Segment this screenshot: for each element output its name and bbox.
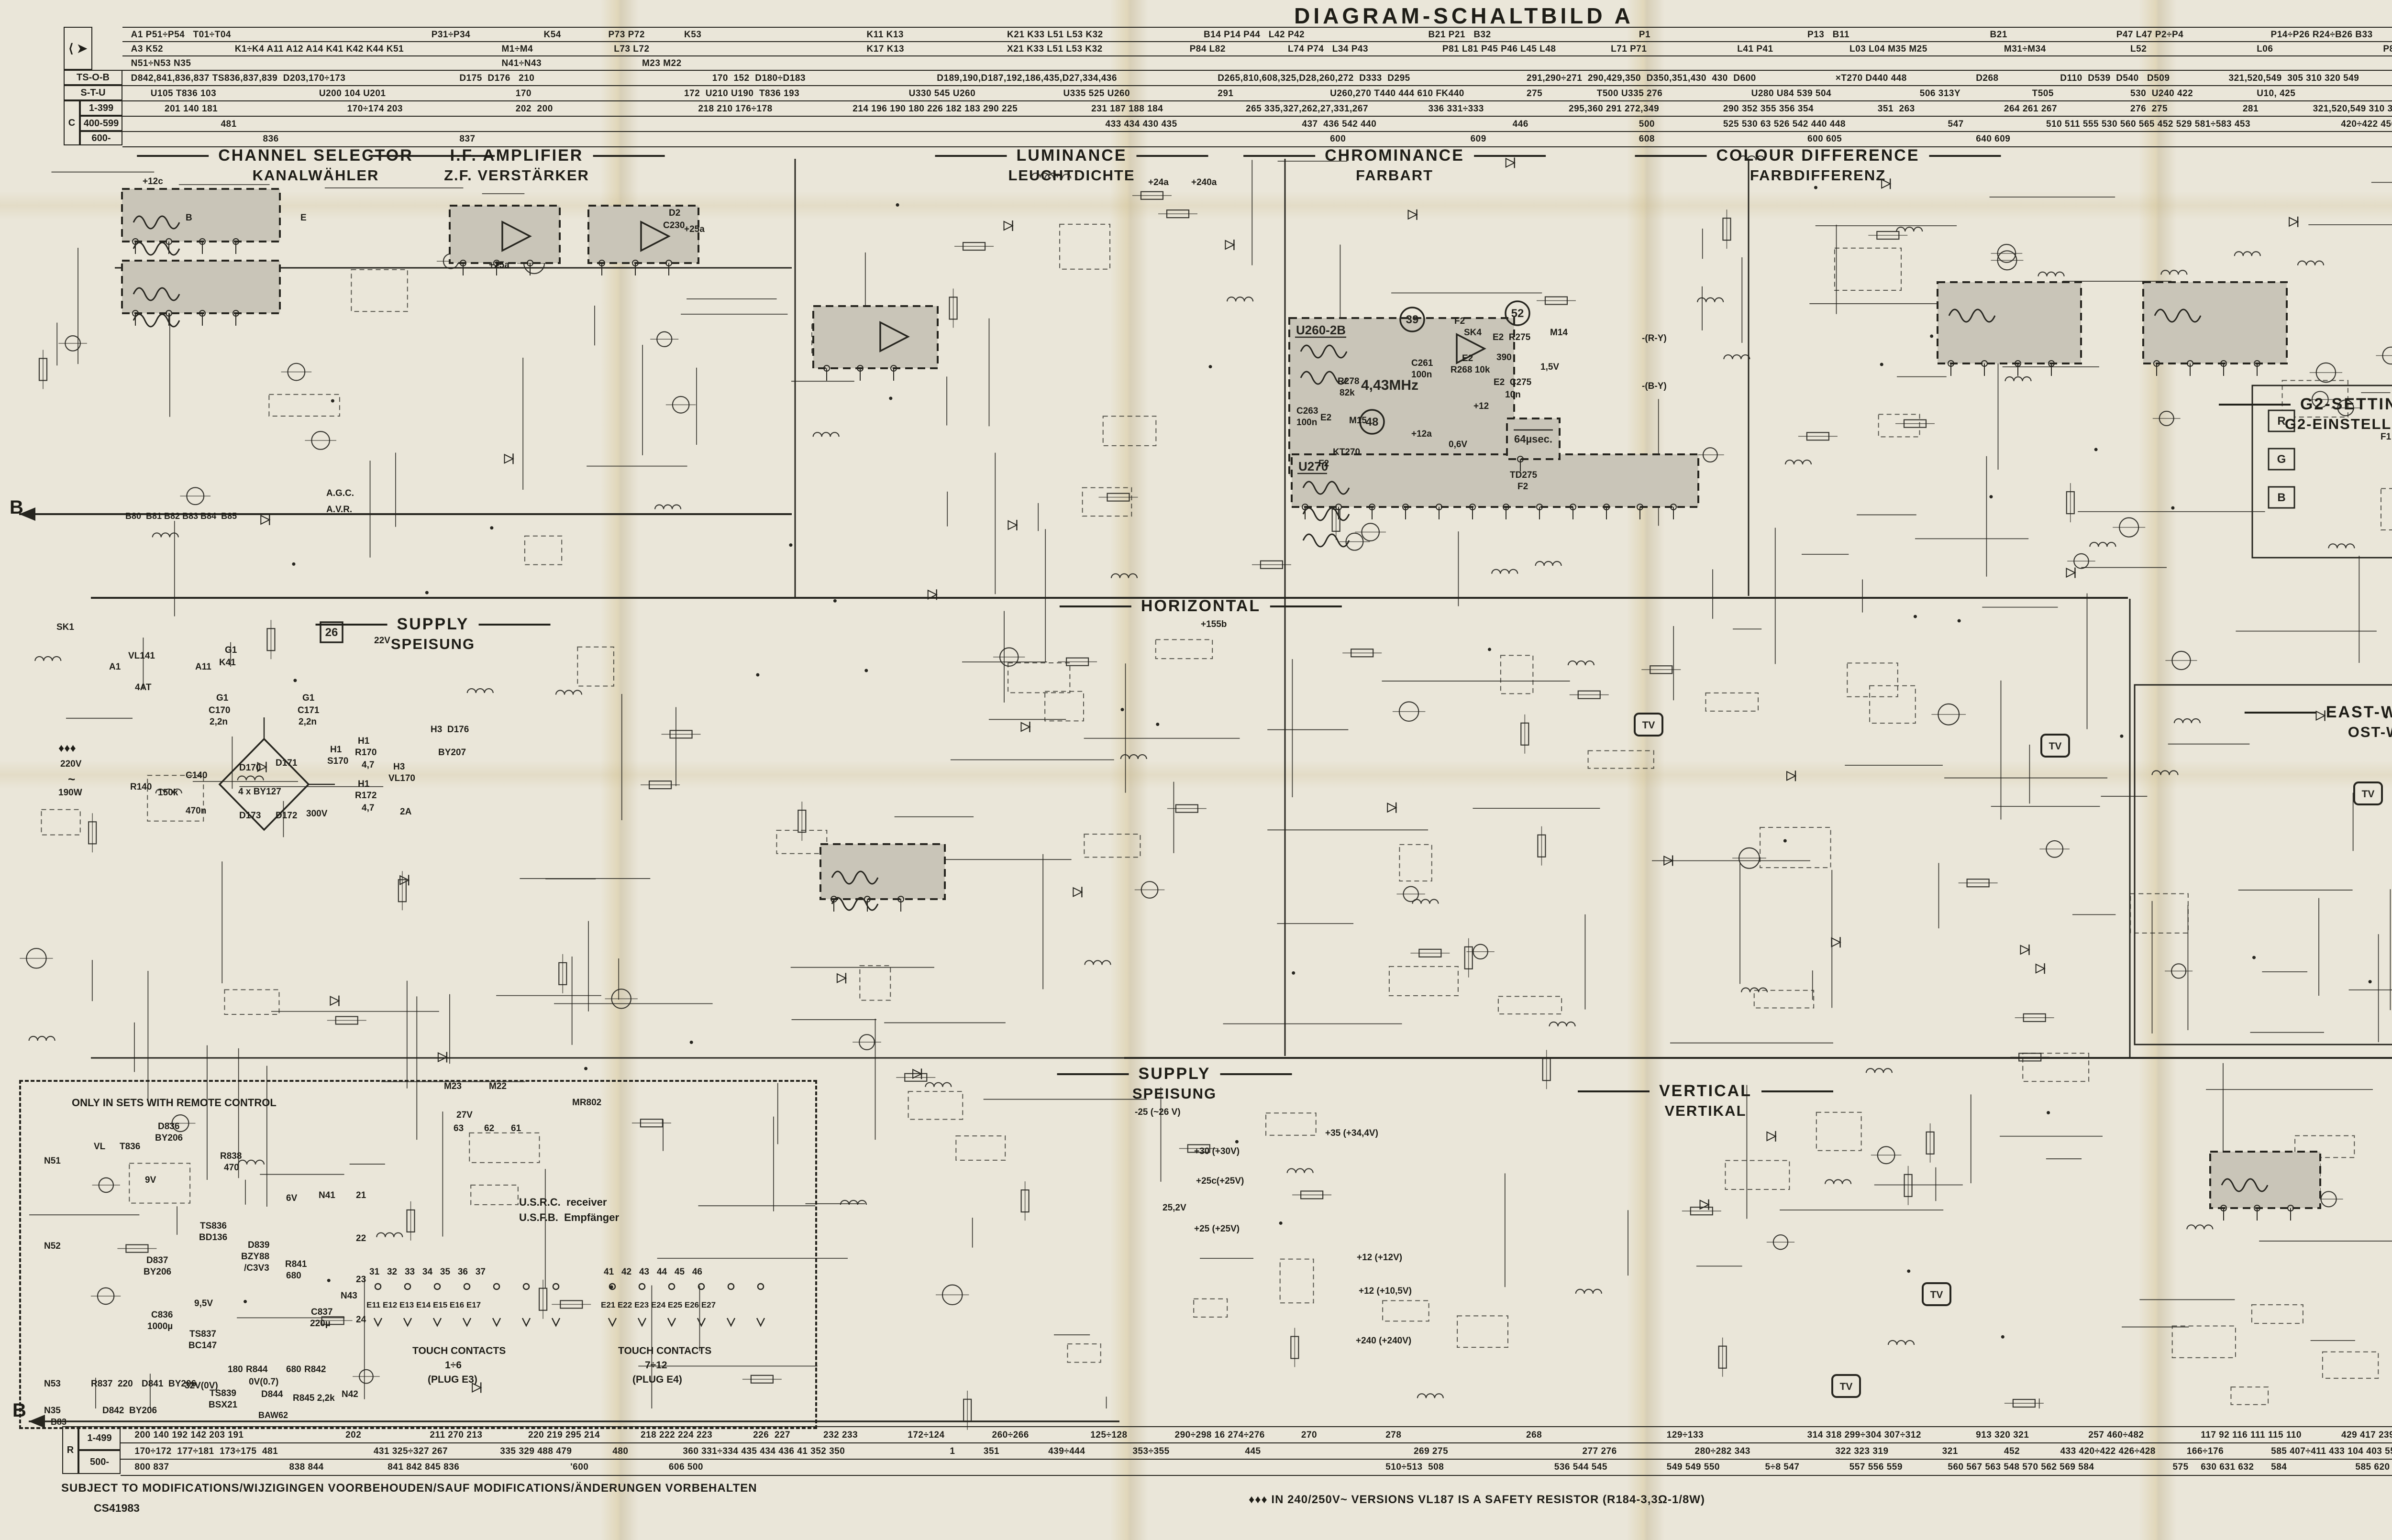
component-label: D844 — [261, 1390, 283, 1399]
edge-strip-values: U335 525 U260 — [1063, 86, 1130, 101]
component-label: 9,5V — [194, 1299, 213, 1309]
edge-strip-values: P13 B11 — [1807, 28, 1849, 42]
component-label: D173 — [239, 811, 261, 821]
schematic-sheet: DIAGRAM-SCHALTBILD A U260-2B4,43MHzU2706… — [0, 0, 2392, 1540]
component-label: N35 — [44, 1406, 61, 1416]
svg-text:48: 48 — [1366, 416, 1379, 429]
component-label: +12 — [1473, 402, 1489, 411]
component-label: A11 — [195, 662, 211, 672]
component-label: ~ — [68, 773, 75, 786]
component-label: 4 x BY127 — [238, 787, 281, 797]
component-label: 23 — [356, 1275, 366, 1285]
edge-strip-values: 606 500 — [669, 1460, 703, 1475]
component-label: C263 — [1296, 407, 1318, 416]
edge-strip-values: 608 — [1639, 132, 1655, 146]
component-label: VL — [94, 1142, 105, 1152]
svg-text:TV: TV — [2362, 789, 2375, 800]
svg-text:U260-2B: U260-2B — [1296, 323, 1346, 337]
component-label: +240 (+240V) — [1356, 1336, 1411, 1346]
edge-strip-values: N41÷N43 — [501, 56, 542, 71]
section-title-de: FARBART — [1243, 167, 1546, 184]
component-label: G1 — [216, 693, 228, 703]
edge-strip-values: 838 844 — [289, 1460, 324, 1475]
component-label: B — [10, 497, 23, 517]
edge-strip-values: 321,520,549 305 310 320 549 — [2229, 71, 2359, 86]
edge-strip-values: U10, 425 — [2257, 86, 2295, 101]
component-label: 2,2n — [299, 717, 317, 727]
edge-strip-values: K53 — [684, 28, 701, 42]
component-label: R842 — [304, 1365, 326, 1375]
component-label: TOUCH CONTACTS — [618, 1346, 711, 1356]
edge-strip-values: 575 — [2172, 1460, 2188, 1475]
component-label: D836 — [158, 1122, 179, 1132]
edge-strip-label: 600- — [80, 131, 122, 145]
edge-strip-values: L73 L72 — [614, 42, 649, 56]
component-label: +12a — [1411, 429, 1432, 439]
edge-strip-values: 322 323 319 — [1835, 1443, 1888, 1460]
edge-strip-values: 214 196 190 180 226 182 183 290 225 — [853, 101, 1018, 117]
edge-strip-values: 170 — [516, 86, 532, 101]
section-title-en: LUMINANCE — [935, 146, 1208, 165]
component-label: 470n — [186, 806, 206, 816]
component-label: M22 — [489, 1082, 507, 1091]
component-label: D842 BY206 — [102, 1406, 157, 1416]
edge-strip-values: 446 — [1513, 117, 1528, 132]
edge-strip-values: D175 D176 210 — [459, 71, 534, 86]
section-vertical: VERTICALVERTIKAL — [1578, 1082, 1833, 1120]
component-label: 62 — [484, 1124, 494, 1133]
edge-strip-values: 353÷355 — [1132, 1443, 1169, 1460]
section-i-f-amplifier: I.F. AMPLIFIERZ.F. VERSTÄRKER — [369, 146, 665, 184]
section-east-west-correction: EAST-WEST CORRECTIONOST-WEST KORREKTUR — [2245, 703, 2392, 741]
component-label: +25a — [684, 225, 705, 234]
edge-strip-values: 257 460÷482 — [2088, 1427, 2144, 1443]
section-g2-setting: G2-SETTINGG2-EINSTELLUNG — [2219, 395, 2392, 433]
component-label: TS837 — [189, 1330, 216, 1339]
component-label: KT270 — [1333, 448, 1360, 457]
component-label: 300V — [306, 809, 327, 819]
edge-strip-values: 336 331÷333 — [1429, 101, 1484, 117]
edge-strip-label: 400-599 — [80, 116, 122, 131]
section-title-de: OST-WEST KORREKTUR — [2245, 724, 2392, 741]
component-label: BZY88 — [241, 1252, 269, 1262]
svg-text:TV: TV — [2049, 741, 2062, 752]
component-label: +25a — [489, 261, 509, 270]
edge-strip-label: S-T-U — [64, 85, 122, 100]
edge-strip-values: 452 — [2004, 1443, 2020, 1460]
edge-strip-values: 480 — [612, 1443, 628, 1460]
component-label: N53 — [44, 1379, 61, 1389]
edge-strip-values: 836 — [263, 132, 279, 146]
component-label: 1000µ — [147, 1322, 173, 1331]
component-label: R844 — [246, 1365, 267, 1375]
edge-strip-values: 841 842 845 836 — [388, 1460, 459, 1475]
edge-strip-values: 265 335,327,262,27,331,267 — [1246, 101, 1368, 117]
edge-strip-values: 600 605 — [1807, 132, 1842, 146]
component-label: SK1 — [56, 623, 74, 632]
component-label: 63 — [454, 1124, 464, 1133]
edge-strip-values: P86 P85 L84 L83 — [2383, 42, 2392, 56]
component-label: 680 — [286, 1365, 301, 1375]
section-title-en: COLOUR DIFFERENCE — [1635, 146, 2001, 165]
edge-strip-values: 202 — [345, 1427, 361, 1443]
component-label: 9V — [145, 1176, 156, 1185]
component-label: B83 — [51, 1418, 66, 1427]
edge-strip-values: P81 L81 P45 P46 L45 L48 — [1442, 42, 1556, 56]
component-label: BD136 — [199, 1233, 227, 1243]
component-label: +24a — [1148, 178, 1169, 187]
edge-strip-values: X21 K33 L51 L53 K32 — [1007, 42, 1103, 56]
edge-strip-values: 630 631 632 — [2201, 1460, 2254, 1475]
edge-strip-values: 837 — [459, 132, 475, 146]
component-label: -(B-Y) — [1642, 382, 1667, 391]
component-label: F2 — [1318, 459, 1329, 469]
svg-text:TV: TV — [1642, 720, 1655, 731]
component-label: TD275 — [1510, 471, 1537, 480]
edge-strip-values: A1 P51÷P54 T01÷T04 — [131, 28, 231, 42]
section-title-en: I.F. AMPLIFIER — [369, 146, 665, 165]
edge-strip-values: L71 P71 — [1611, 42, 1647, 56]
edge-strip-values: 510÷513 508 — [1385, 1460, 1444, 1475]
edge-strip-values: 481 — [221, 117, 236, 132]
edge-strip-values: 530 U240 422 — [2130, 86, 2193, 101]
edge-strip-values: K11 K13 — [867, 28, 904, 42]
edge-strip-values: 437 436 542 440 — [1302, 117, 1376, 132]
edge-strip-values: 445 — [1245, 1443, 1261, 1460]
edge-strip-values: 117 92 116 111 115 110 — [2201, 1427, 2302, 1443]
edge-strip-label: C — [64, 100, 80, 145]
component-label: R170 — [355, 748, 377, 758]
component-label: 220V — [60, 759, 81, 769]
edge-strip-values: 525 530 63 526 542 440 448 — [1723, 117, 1846, 132]
component-label: 41 42 43 44 45 46 — [604, 1267, 702, 1277]
component-label: N51 — [44, 1156, 61, 1166]
edge-strip-values: P84 L82 — [1190, 42, 1226, 56]
edge-strip-values: D189,190,D187,192,186,435,D27,334,436 — [937, 71, 1117, 86]
component-label: (PLUG E4) — [632, 1375, 682, 1385]
component-label: N52 — [44, 1242, 61, 1251]
section-chrominance: CHROMINANCEFARBART — [1243, 146, 1546, 184]
edge-strip-values: 201 140 181 — [165, 101, 218, 117]
edge-strip-values: 232 233 — [823, 1427, 858, 1443]
edge-strip-values: A3 K52 — [131, 42, 163, 56]
component-label: 21 — [356, 1191, 366, 1200]
edge-strip-row: 201 140 181170÷174 203202 200218 210 176… — [122, 100, 2392, 117]
component-label: 0,6V — [1449, 440, 1467, 450]
component-label: 6V — [286, 1194, 297, 1203]
component-label: R841 — [285, 1260, 307, 1269]
section-supply: SUPPLYSPEISUNG — [316, 615, 551, 653]
edge-strip-values: 125÷128 — [1090, 1427, 1127, 1443]
component-label: N43 — [341, 1291, 357, 1301]
component-label: G1 — [302, 693, 314, 703]
component-label: 10n — [1505, 390, 1521, 400]
edge-strip-values: 549 549 550 — [1667, 1460, 1720, 1475]
edge-strip-row: 836837600609608600 605640 609600÷690 — [122, 131, 2392, 147]
edge-strip-values: U280 U84 539 504 — [1751, 86, 1832, 101]
edge-strip-values: 166÷176 — [2187, 1443, 2224, 1460]
component-label: A.V.R. — [326, 505, 352, 515]
component-label: +155b — [1201, 620, 1227, 629]
edge-strip-values: 278 — [1385, 1427, 1401, 1443]
component-label: 100n — [1411, 370, 1432, 380]
edge-strip-values: 321,520,549 310 320 — [2313, 101, 2392, 117]
component-label: E2 — [1462, 354, 1473, 363]
component-label: S170 — [327, 757, 348, 766]
edge-strip-values: 913 320 321 — [1976, 1427, 2029, 1443]
edge-strip-values: 170÷172 177÷181 173÷175 481 — [134, 1443, 278, 1460]
component-label: M15 — [1349, 416, 1367, 426]
component-label: 150k — [158, 788, 178, 798]
edge-strip-values: 557 556 559 — [1849, 1460, 1903, 1475]
edge-strip-values: 429 417 239÷245 159 152 248 — [2341, 1427, 2392, 1443]
edge-strip-values: B21 — [1990, 28, 2007, 42]
component-label: 220µ — [310, 1319, 331, 1329]
component-label: B — [12, 1400, 26, 1420]
edge-strip-values: 260÷266 — [992, 1427, 1029, 1443]
component-label: C140 — [186, 771, 207, 781]
component-label: N41 — [319, 1191, 335, 1200]
subject-note: SUBJECT TO MODIFICATIONS/WIJZIGINGEN VOO… — [61, 1482, 757, 1495]
component-label: BY206 — [155, 1133, 183, 1143]
component-label: H1 — [358, 780, 369, 789]
edge-strip-values: 231 187 188 184 — [1091, 101, 1163, 117]
edge-strip-values: 218 222 224 223 — [641, 1427, 712, 1443]
edge-strip-values: 226 227 — [753, 1427, 790, 1443]
edge-strip-values: 218 210 176÷178 — [698, 101, 772, 117]
edge-strip-values: 335 329 488 479 — [500, 1443, 572, 1460]
component-label: 4,7 — [362, 760, 374, 770]
edge-strip-values: K17 K13 — [867, 42, 905, 56]
edge-strip-values: 640 609 — [1976, 132, 2010, 146]
section-title-en: CHROMINANCE — [1243, 146, 1546, 165]
edge-strip-values: 420÷422 456÷458 — [2341, 117, 2392, 132]
component-label: E2 — [1320, 413, 1331, 423]
edge-strip-values: K54 — [544, 28, 561, 42]
component-label: D171 — [276, 759, 297, 768]
edge-strip-values: 585 620 621 586 622 623 624 625 626 597 … — [2355, 1460, 2392, 1475]
component-label: 2,2n — [210, 717, 228, 727]
edge-strip-values: 270 — [1301, 1427, 1317, 1443]
edge-strip-values: 1 — [950, 1443, 955, 1460]
edge-strip-values: 220 219 295 214 — [528, 1427, 600, 1443]
svg-text:64µsec.: 64µsec. — [1514, 433, 1552, 445]
section-title-en: SUPPLY — [1057, 1065, 1292, 1083]
edge-strip-values: 281 — [2243, 101, 2259, 117]
edge-strip-values: D268 — [1976, 71, 1998, 86]
component-label: +12 (+10,5V) — [1359, 1287, 1412, 1296]
edge-strip-values: K21 K33 L51 L53 K32 — [1007, 28, 1103, 42]
section-title-de: VERTIKAL — [1578, 1102, 1833, 1120]
edge-strip-values: 500 — [1639, 117, 1655, 132]
component-label: E — [300, 213, 307, 223]
component-label: K41 — [219, 658, 236, 668]
section-title-de: Z.F. VERSTÄRKER — [369, 167, 665, 184]
component-label: H3 D176 — [431, 725, 469, 735]
edge-strip-values: 129÷133 — [1667, 1427, 1704, 1443]
component-label: -(R-Y) — [1642, 334, 1667, 343]
component-label: BY206 — [144, 1267, 171, 1277]
component-label: D837 — [146, 1256, 168, 1265]
edge-strip-values: B21 P21 B32 — [1429, 28, 1491, 42]
edge-strip-values: ×T270 D440 448 — [1836, 71, 1907, 86]
edge-strip-values: P1 — [1639, 28, 1650, 42]
component-label: ♦♦♦ — [58, 742, 76, 754]
edge-strip-row: N51÷N53 N35N41÷N43M23 M22M41 M46 M42 M45 — [122, 55, 2392, 71]
edge-strip-values: B14 P14 P44 L42 P42 — [1204, 28, 1305, 42]
edge-strip-values: 200 140 192 142 203 191 — [134, 1427, 244, 1443]
component-label: SK4 — [1464, 328, 1482, 338]
component-label: BC147 — [188, 1341, 217, 1351]
component-label: 61 — [511, 1124, 521, 1133]
component-label: (PLUG E3) — [428, 1375, 477, 1385]
edge-strip-values: '600 — [570, 1460, 588, 1475]
component-label: 4AT — [135, 683, 151, 693]
component-label: H1 — [358, 737, 369, 746]
edge-strip-values: 172 U210 U190 T836 193 — [684, 86, 799, 101]
component-label: TS836 — [200, 1221, 227, 1231]
edge-strip-values: 360 331÷334 435 434 436 41 352 350 — [683, 1443, 845, 1460]
edge-strip-row: 170÷172 177÷181 173÷175 481431 325÷327 2… — [121, 1442, 2392, 1460]
edge-strip-row: U105 T836 103U200 104 U201170172 U210 U1… — [122, 85, 2392, 101]
edge-strip-values: 584 — [2271, 1460, 2287, 1475]
edge-strip-values: 269 275 — [1414, 1443, 1448, 1460]
edge-strip-values: 609 — [1471, 132, 1486, 146]
edge-strip-values: U105 T836 103 — [151, 86, 217, 101]
edge-strip-row: A3 K52K1÷K4 A11 A12 A14 K41 K42 K44 K51M… — [122, 41, 2392, 56]
component-label: +25c(+25V) — [1196, 1177, 1244, 1186]
edge-strip-values: 351 — [984, 1443, 999, 1460]
component-label: R845 2,2k — [293, 1394, 335, 1403]
edge-strip-label: R — [62, 1426, 78, 1474]
edge-strip-values: P73 P72 — [609, 28, 645, 42]
component-label: BAW62 — [258, 1411, 288, 1420]
component-label: 27V — [456, 1111, 473, 1120]
component-label: R172 — [355, 791, 377, 801]
component-label: C261 — [1411, 359, 1433, 368]
edge-strip-values: 172÷124 — [908, 1427, 944, 1443]
component-label: A.G.C. — [326, 489, 354, 498]
component-label: B80 B81 B82 B83 B84 B85 — [125, 512, 237, 521]
component-label: R837 220 — [91, 1379, 133, 1389]
section-title-de: SPEISUNG — [316, 636, 551, 653]
edge-strip-values: 170 152 D180÷D183 — [712, 71, 806, 86]
edge-strip-values: L06 — [2257, 42, 2273, 56]
remote-control-box — [19, 1080, 817, 1429]
svg-text:52: 52 — [1511, 307, 1524, 320]
component-label: R278 — [1338, 377, 1359, 386]
section-colour-difference: COLOUR DIFFERENCEFARBDIFFERENZ — [1635, 146, 2001, 184]
edge-strip-values: M23 M22 — [642, 56, 682, 71]
component-label: F1 R3 — [2381, 432, 2392, 442]
component-label: C230 — [663, 221, 685, 231]
component-label: R268 10k — [1451, 365, 1490, 375]
component-label: D839 — [248, 1241, 269, 1250]
edge-strip-values: 600 — [1330, 132, 1346, 146]
edge-strip-values: 202 200 — [516, 101, 553, 117]
component-label: 470 — [224, 1163, 239, 1173]
edge-strip-values: 277 276 — [1583, 1443, 1617, 1460]
edge-strip-values: 433 434 430 435 — [1106, 117, 1177, 132]
edge-strip-row: 800 837838 844841 842 845 836'600606 500… — [121, 1459, 2392, 1476]
component-label: 680 — [286, 1271, 301, 1281]
edge-strip-values: P31÷P34 — [432, 28, 471, 42]
edge-strip-values: D110 D539 D540 D509 — [2060, 71, 2170, 86]
component-label: 22V — [374, 636, 390, 646]
component-label: T836 — [120, 1142, 140, 1152]
component-label: 25,2V — [1163, 1203, 1186, 1213]
edge-strip-values: 510 511 555 530 560 565 452 529 581÷583 … — [2046, 117, 2250, 132]
component-label: R140 — [130, 782, 152, 792]
component-label: VL170 — [388, 774, 415, 783]
edge-strip-row: 481433 434 430 435437 436 542 4404465005… — [122, 116, 2392, 132]
component-label: 180 — [228, 1365, 243, 1375]
edge-strip-values: 321 — [1942, 1443, 1958, 1460]
edge-strip-values: P14÷P26 R24÷B26 B33 — [2271, 28, 2373, 42]
component-label: N42 — [342, 1390, 358, 1399]
edge-strip-values: 506 313Y — [1920, 86, 1960, 101]
section-title-en: G2-SETTING — [2219, 395, 2392, 414]
edge-strip-values: 280÷282 343 — [1695, 1443, 1750, 1460]
edge-strip-values: 276 275 — [2130, 101, 2168, 117]
section-horizontal: HORIZONTAL — [1060, 597, 1342, 616]
safety-note: ♦♦♦ IN 240/250V~ VERSIONS VL187 IS A SAF… — [1249, 1493, 1705, 1507]
edge-strip-values: 291 — [1218, 86, 1233, 101]
section-title-de: G2-EINSTELLUNG — [2219, 416, 2392, 433]
component-label: B — [186, 213, 192, 223]
component-label: BSX21 — [209, 1400, 237, 1410]
component-label: BY207 — [438, 748, 466, 758]
component-label: +30 (+30V) — [1194, 1147, 1240, 1156]
edge-strip-values: 170÷174 203 — [347, 101, 403, 117]
component-label: 7÷12 — [645, 1360, 667, 1371]
edge-strip-values: L52 — [2130, 42, 2147, 56]
component-label: E2 C275 — [1494, 378, 1531, 387]
edge-strip-values: 431 325÷327 267 — [374, 1443, 448, 1460]
component-label: +240a — [1191, 178, 1217, 187]
component-label: 22 — [356, 1234, 366, 1243]
component-label: E11 E12 E13 E14 E15 E16 E17 — [366, 1301, 481, 1309]
edge-strip-label: 1-399 — [80, 100, 122, 116]
edge-strip-values: 800 837 — [134, 1460, 169, 1475]
edge-strip-values: 295,360 291 272,349 — [1569, 101, 1659, 117]
component-label: 1,5V — [1540, 363, 1559, 372]
component-label: E21 E22 E23 E24 E25 E26 E27 — [601, 1301, 716, 1309]
component-label: C837 — [311, 1308, 332, 1317]
component-label: H1 — [330, 745, 342, 755]
edge-strip-values: T500 U335 276 — [1597, 86, 1663, 101]
edge-strip-label: 500- — [78, 1450, 121, 1474]
edge-strip-values: 264 261 267 — [2004, 101, 2057, 117]
edge-strip-values: M31÷M34 — [2004, 42, 2046, 56]
component-label: 2A — [400, 807, 411, 817]
component-label: E2 R275 — [1493, 333, 1530, 342]
component-label: M14 — [1550, 328, 1568, 338]
section-title-en: EAST-WEST CORRECTION — [2245, 703, 2392, 722]
component-label: VL141 — [128, 651, 155, 661]
component-label: ONLY IN SETS WITH REMOTE CONTROL — [72, 1097, 277, 1108]
edge-strip-values: 433 420÷422 426÷428 — [2060, 1443, 2155, 1460]
component-label: M23 — [444, 1082, 462, 1091]
component-label: -25 (~26 V) — [1135, 1108, 1181, 1117]
edge-strip-values: 290÷298 16 274÷276 — [1175, 1427, 1265, 1443]
component-label: +35 (+34,4V) — [1325, 1129, 1378, 1138]
component-label: H3 — [393, 762, 405, 772]
edge-strip-values: 585 407÷411 433 104 403 554÷556 123 461 … — [2271, 1443, 2392, 1460]
component-label: C836 — [151, 1310, 173, 1320]
edge-strip-values: D842,841,836,837 TS836,837,839 D203,170÷… — [131, 71, 346, 86]
edge-strip-label: TS-O-B — [64, 70, 122, 85]
